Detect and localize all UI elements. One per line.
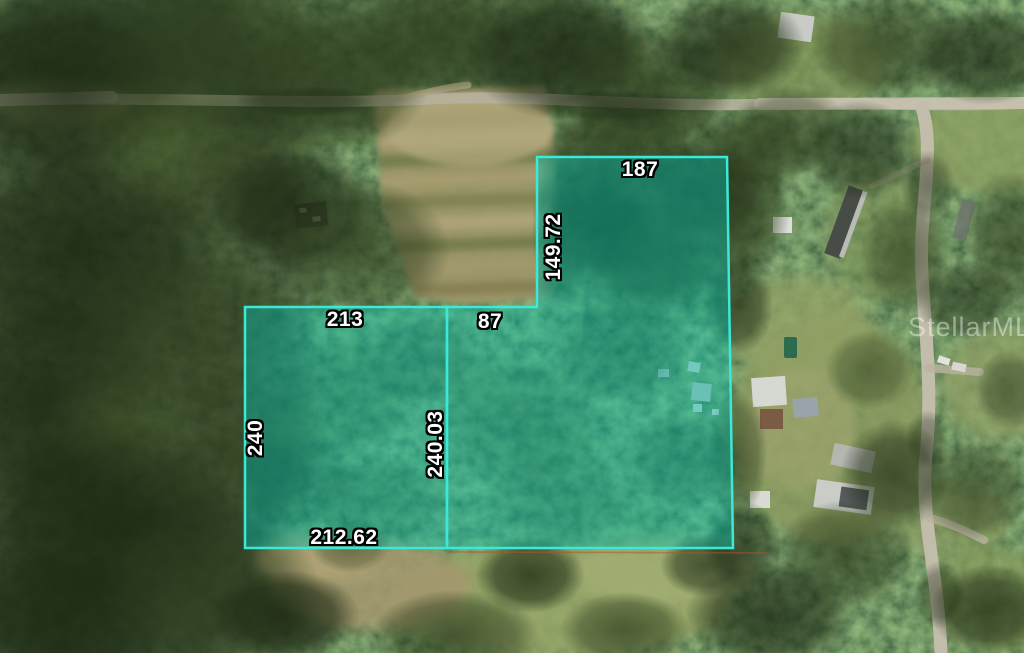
building (751, 376, 787, 407)
aerial-parcel-map: 187149.7221387240240.03212.62 StellarMLS (0, 0, 1024, 653)
adjacent-parcel-line (450, 552, 768, 553)
satellite-background (0, 0, 1024, 653)
left-parcel-boundary (245, 307, 447, 548)
building (792, 397, 819, 418)
pool (784, 337, 797, 358)
